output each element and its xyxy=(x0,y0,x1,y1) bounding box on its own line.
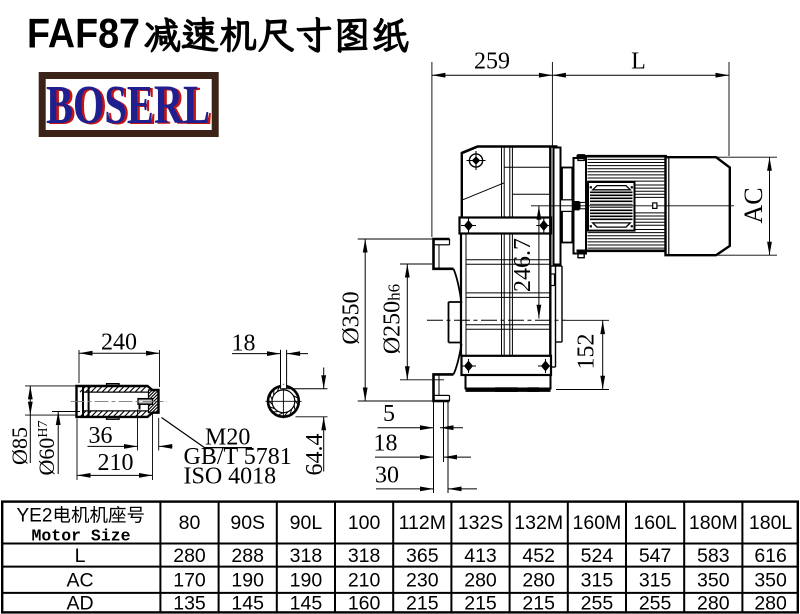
svg-text:100: 100 xyxy=(348,512,381,534)
svg-text:280: 280 xyxy=(697,592,730,614)
svg-text:Ø350: Ø350 xyxy=(338,291,364,344)
svg-text:350: 350 xyxy=(697,570,730,592)
svg-text:280: 280 xyxy=(522,570,555,592)
svg-text:L: L xyxy=(75,545,86,567)
svg-text:5: 5 xyxy=(383,401,395,427)
svg-text:240: 240 xyxy=(101,330,137,356)
svg-text:180L: 180L xyxy=(749,512,793,534)
svg-text:80: 80 xyxy=(179,512,201,534)
svg-text:318: 318 xyxy=(348,545,381,567)
svg-text:180M: 180M xyxy=(689,512,738,534)
svg-text:452: 452 xyxy=(522,545,555,567)
svg-text:AD: AD xyxy=(66,592,93,614)
svg-text:ISO 4018: ISO 4018 xyxy=(184,464,277,490)
svg-text:255: 255 xyxy=(639,592,672,614)
svg-text:132M: 132M xyxy=(514,512,563,534)
svg-text:616: 616 xyxy=(754,545,787,567)
svg-text:190: 190 xyxy=(290,570,323,592)
svg-text:210: 210 xyxy=(348,570,381,592)
svg-text:259: 259 xyxy=(474,49,510,75)
svg-text:190: 190 xyxy=(231,570,264,592)
svg-text:30: 30 xyxy=(375,462,399,488)
svg-text:160L: 160L xyxy=(633,512,677,534)
svg-text:L: L xyxy=(631,49,646,75)
svg-text:583: 583 xyxy=(697,545,730,567)
svg-text:524: 524 xyxy=(581,545,614,567)
svg-text:288: 288 xyxy=(231,545,264,567)
svg-text:280: 280 xyxy=(754,592,787,614)
svg-text:215: 215 xyxy=(406,592,439,614)
svg-text:64.4: 64.4 xyxy=(302,434,328,476)
svg-text:36: 36 xyxy=(89,423,113,449)
svg-text:18: 18 xyxy=(232,330,256,356)
svg-text:160M: 160M xyxy=(573,512,622,534)
svg-text:350: 350 xyxy=(754,570,787,592)
svg-text:112M: 112M xyxy=(399,512,446,534)
svg-text:90S: 90S xyxy=(230,512,265,534)
svg-text:135: 135 xyxy=(173,592,206,614)
svg-text:BOSERL: BOSERL xyxy=(46,74,210,135)
svg-text:280: 280 xyxy=(464,570,497,592)
svg-text:210: 210 xyxy=(98,450,134,476)
svg-text:246.7: 246.7 xyxy=(510,238,536,292)
svg-text:215: 215 xyxy=(464,592,497,614)
svg-text:132S: 132S xyxy=(458,512,504,534)
svg-text:18: 18 xyxy=(374,431,398,457)
svg-text:215: 215 xyxy=(522,592,555,614)
svg-text:145: 145 xyxy=(290,592,323,614)
svg-text:145: 145 xyxy=(231,592,264,614)
svg-text:90L: 90L xyxy=(290,512,323,534)
svg-text:AC: AC xyxy=(739,187,768,223)
svg-text:315: 315 xyxy=(639,570,672,592)
svg-text:Motor Size: Motor Size xyxy=(31,527,130,546)
svg-text:318: 318 xyxy=(290,545,323,567)
svg-text:170: 170 xyxy=(173,570,206,592)
svg-text:255: 255 xyxy=(581,592,614,614)
svg-text:FAF87: FAF87 xyxy=(27,10,140,57)
svg-text:AC: AC xyxy=(66,570,93,592)
svg-text:280: 280 xyxy=(173,545,206,567)
svg-text:365: 365 xyxy=(406,545,439,567)
svg-text:413: 413 xyxy=(464,545,497,567)
svg-text:YE2: YE2 xyxy=(17,506,53,527)
svg-text:230: 230 xyxy=(406,570,439,592)
svg-text:152: 152 xyxy=(573,334,599,370)
svg-text:315: 315 xyxy=(581,570,614,592)
svg-text:Ø85: Ø85 xyxy=(7,427,32,465)
svg-text:160: 160 xyxy=(348,592,381,614)
svg-text:547: 547 xyxy=(639,545,672,567)
